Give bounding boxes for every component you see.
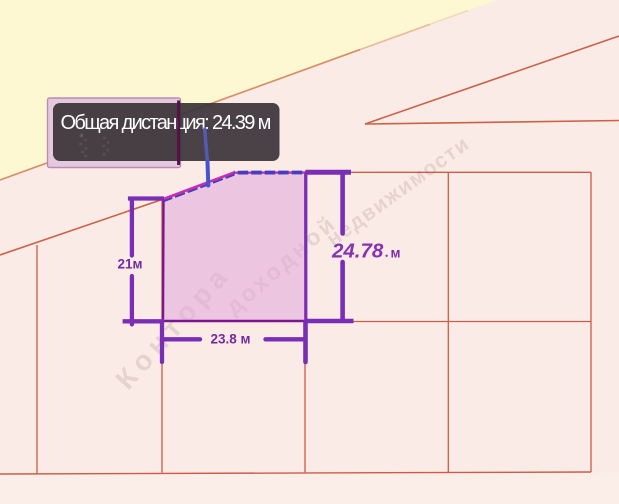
svg-text:24.78: 24.78 — [331, 240, 384, 263]
svg-text:м: м — [391, 246, 401, 261]
svg-text:21м: 21м — [118, 257, 143, 272]
svg-text:Общая дистанция: 24.39 м: Общая дистанция: 24.39 м — [61, 112, 271, 134]
svg-text:23.8 м: 23.8 м — [211, 332, 251, 347]
